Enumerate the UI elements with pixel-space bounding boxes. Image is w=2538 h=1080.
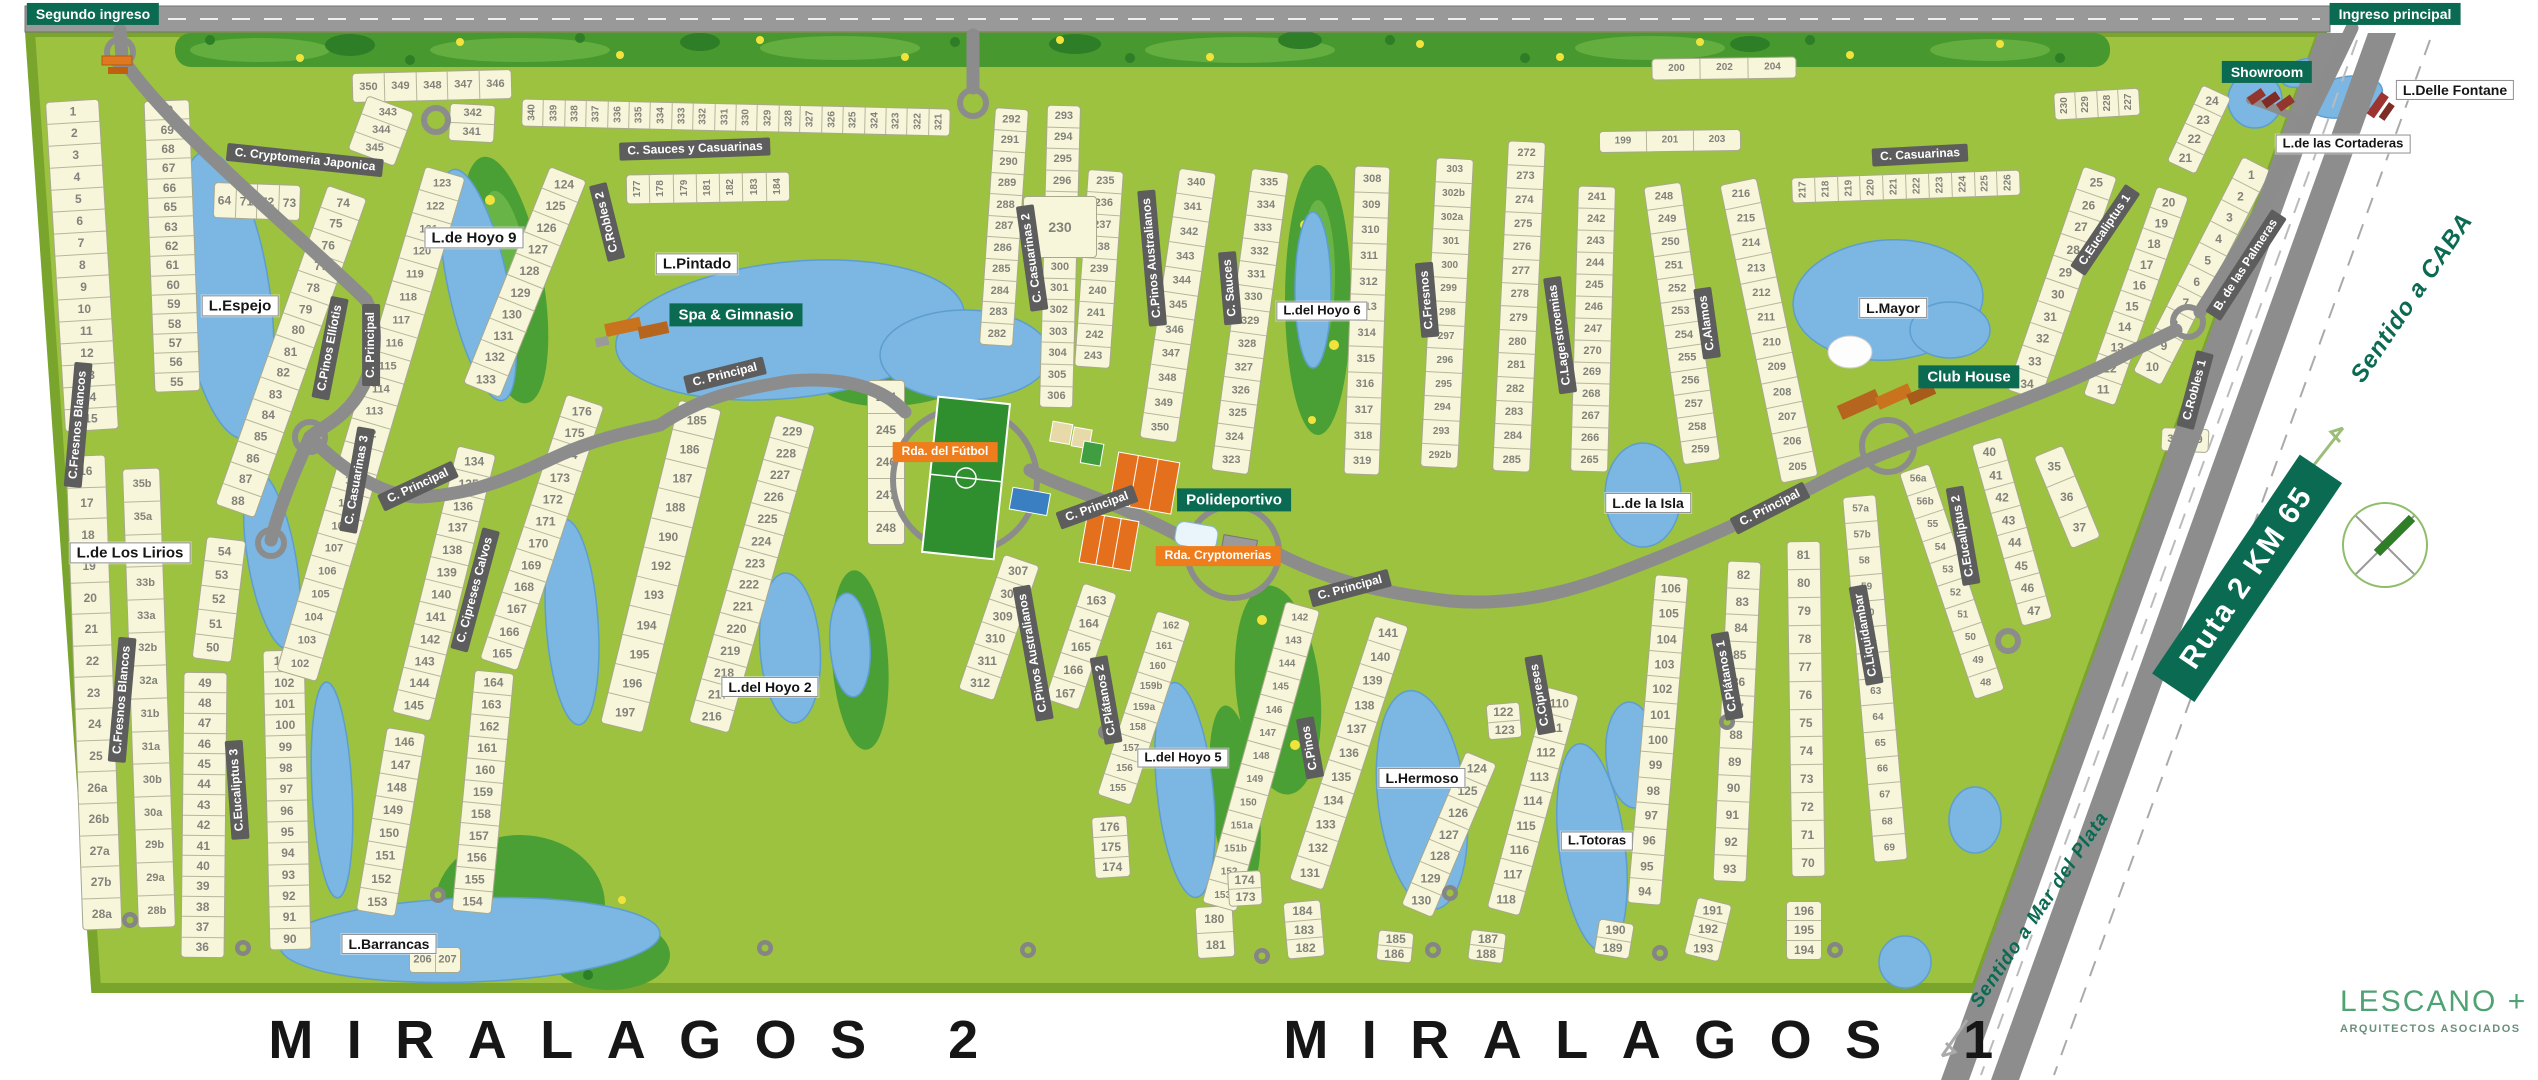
street-label: C.Eucaliptus 1: [2070, 184, 2140, 276]
lake-label: L.Totoras: [1561, 832, 1633, 851]
street-label: C.Cipreses: [1524, 655, 1555, 736]
street-label: C.Robles 1: [2176, 350, 2213, 430]
brand-name: LESCANO +: [2340, 985, 2527, 1019]
street-label: C.Eucaliptus 2: [1946, 486, 1981, 586]
street-label: C. Principal: [1729, 481, 1810, 534]
street-label: C. Cipreses Calvos: [450, 527, 499, 652]
street-label: C. Principal: [683, 356, 767, 393]
brand-subtitle: ARQUITECTOS ASOCIADOS: [2340, 1023, 2527, 1035]
street-label: C. Sauces: [1218, 251, 1242, 326]
lake-label: L.de la Isla: [1605, 493, 1691, 513]
lake-label: L.del Hoyo 5: [1137, 749, 1228, 768]
brand-lescano: LESCANO + ARQUITECTOS ASOCIADOS: [2340, 985, 2527, 1035]
street-label: C.Pinos Ellíotis: [311, 296, 348, 401]
road-direction-note: Sentido a CABA: [2345, 208, 2479, 388]
street-label: C.Fresnos Blancos: [108, 637, 137, 763]
street-label: C. Casuarinas 3: [339, 426, 375, 534]
street-label: C. Principal: [1308, 569, 1392, 607]
lake-label: L.Delle Fontane: [2396, 80, 2514, 100]
street-label: C.Fresnos: [1415, 262, 1439, 338]
street-label: C. Principal: [1055, 485, 1138, 530]
street-label: B. de las Palmeras: [2205, 209, 2286, 321]
street-label: C.Pinos Australianos: [1137, 189, 1167, 326]
lake-label: L.del Hoyo 2: [721, 677, 818, 697]
lake-label: L.Mayor: [1859, 298, 1927, 318]
badge-orange: Rda. Cryptomerias: [1156, 546, 1281, 566]
street-label: C.Liquidambar: [1849, 584, 1884, 686]
street-label: C. Casuarinas: [1872, 144, 1969, 167]
street-label: C.Fresnos Blancos: [64, 362, 93, 488]
badge-green: Segundo ingreso: [27, 3, 159, 25]
street-label: C.Alamos: [1693, 286, 1721, 359]
lake-label: L.de Los Lirios: [70, 542, 191, 563]
badge-green: Showroom: [2222, 61, 2312, 83]
badge-green: Spa & Gimnasio: [669, 303, 802, 326]
street-label: C.Pinos: [1296, 717, 1324, 780]
lake-label: L.Barrancas: [342, 934, 437, 954]
street-label: C.Eucaliptus 3: [225, 740, 250, 840]
street-label: C. Principal: [377, 461, 459, 512]
map-labels: C. PrincipalC. PrincipalC. PrincipalC. P…: [0, 0, 2538, 1080]
site-map: 1234567891011121314151617181920212223242…: [0, 0, 2538, 1080]
street-label: C.Plátanos 1: [1711, 631, 1744, 721]
street-label: C. Cryptomeria Japonica: [226, 143, 384, 177]
badge-green: Polideportivo: [1177, 488, 1291, 511]
lake-label: L.Pintado: [656, 253, 738, 274]
badge-green: Club House: [1918, 365, 2019, 388]
road-direction-note: Sentido a Mar del Plata: [1966, 808, 2113, 1012]
street-label: C.Pinos Australianos: [1012, 584, 1053, 721]
street-label: C. Sauces y Casuarinas: [619, 137, 771, 160]
street-label: C. Principal: [362, 304, 380, 386]
lake-label: L.Hermoso: [1378, 768, 1465, 788]
badge-green: Ingreso principal: [2330, 3, 2461, 25]
lake-label: L.de las Cortaderas: [2276, 135, 2411, 154]
street-label: C. Casuarinas 2: [1016, 204, 1048, 311]
badge-ruta: Ruta 2 KM 65: [2152, 454, 2342, 701]
badge-orange: Rda. del Fútbol: [893, 442, 998, 462]
title-miralagos-2: MIRALAGOS 2: [268, 1009, 1011, 1071]
title-miralagos-1: MIRALAGOS 1: [1283, 1009, 2026, 1071]
lake-label: L.de Hoyo 9: [424, 227, 523, 248]
lake-label: L.del Hoyo 6: [1276, 302, 1367, 321]
street-label: C.Plátanos 2: [1090, 655, 1123, 745]
lake-label: L.Espejo: [202, 295, 279, 316]
street-label: C.Robles 2: [589, 182, 625, 262]
street-label: C.Lagerstroemias: [1543, 276, 1577, 395]
